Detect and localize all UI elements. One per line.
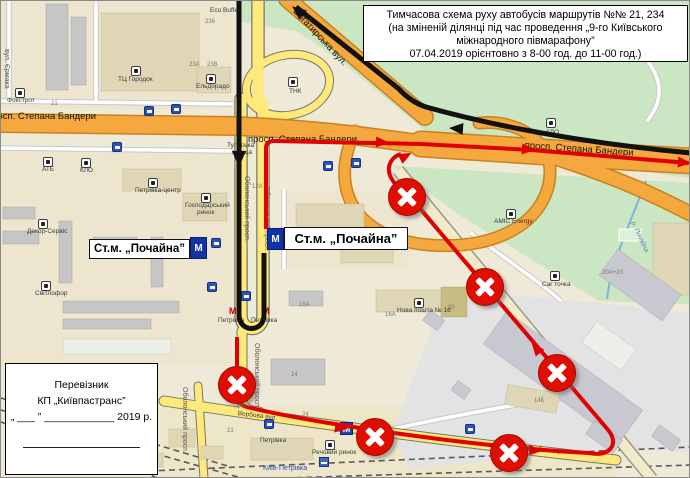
metro-letter: М <box>271 234 279 245</box>
title-line-2: (на зміненій ділянці під час проведення … <box>364 22 687 35</box>
station-right-text: Ст.м. „Почайна” <box>295 231 398 246</box>
title-box: Тимчасова схема руху автобусів маршрутів… <box>363 5 688 62</box>
carrier-box: Перевізник КП „Київпастранс” „ ___ ” ___… <box>5 363 158 475</box>
metro-icon-left: М <box>190 237 207 259</box>
carrier-line-1: Перевізник <box>6 378 157 394</box>
carrier-line-3: „ ___ ” ____________ 2019 р. <box>6 410 157 426</box>
station-label-pochaina-left: Ст.м. „Почайна” <box>89 239 190 259</box>
carrier-line-2: КП „Київпастранс” <box>6 394 157 410</box>
title-line-4: 07.04.2019 орієнтовно з 8-00 год. до 11-… <box>364 48 687 61</box>
title-line-3: міжнародного півмарафону” <box>364 35 687 48</box>
station-left-text: Ст.м. „Почайна” <box>94 243 185 255</box>
station-label-pochaina-right: Ст.м. „Почайна” <box>284 227 408 250</box>
map-canvas[interactable]: просп. Степана Бандерипросп. Степана Бан… <box>0 0 690 478</box>
metro-letter: М <box>194 243 202 254</box>
title-line-1: Тимчасова схема руху автобусів маршрутів… <box>364 9 687 22</box>
metro-icon-right: М <box>267 228 284 250</box>
signature-line <box>23 447 141 448</box>
